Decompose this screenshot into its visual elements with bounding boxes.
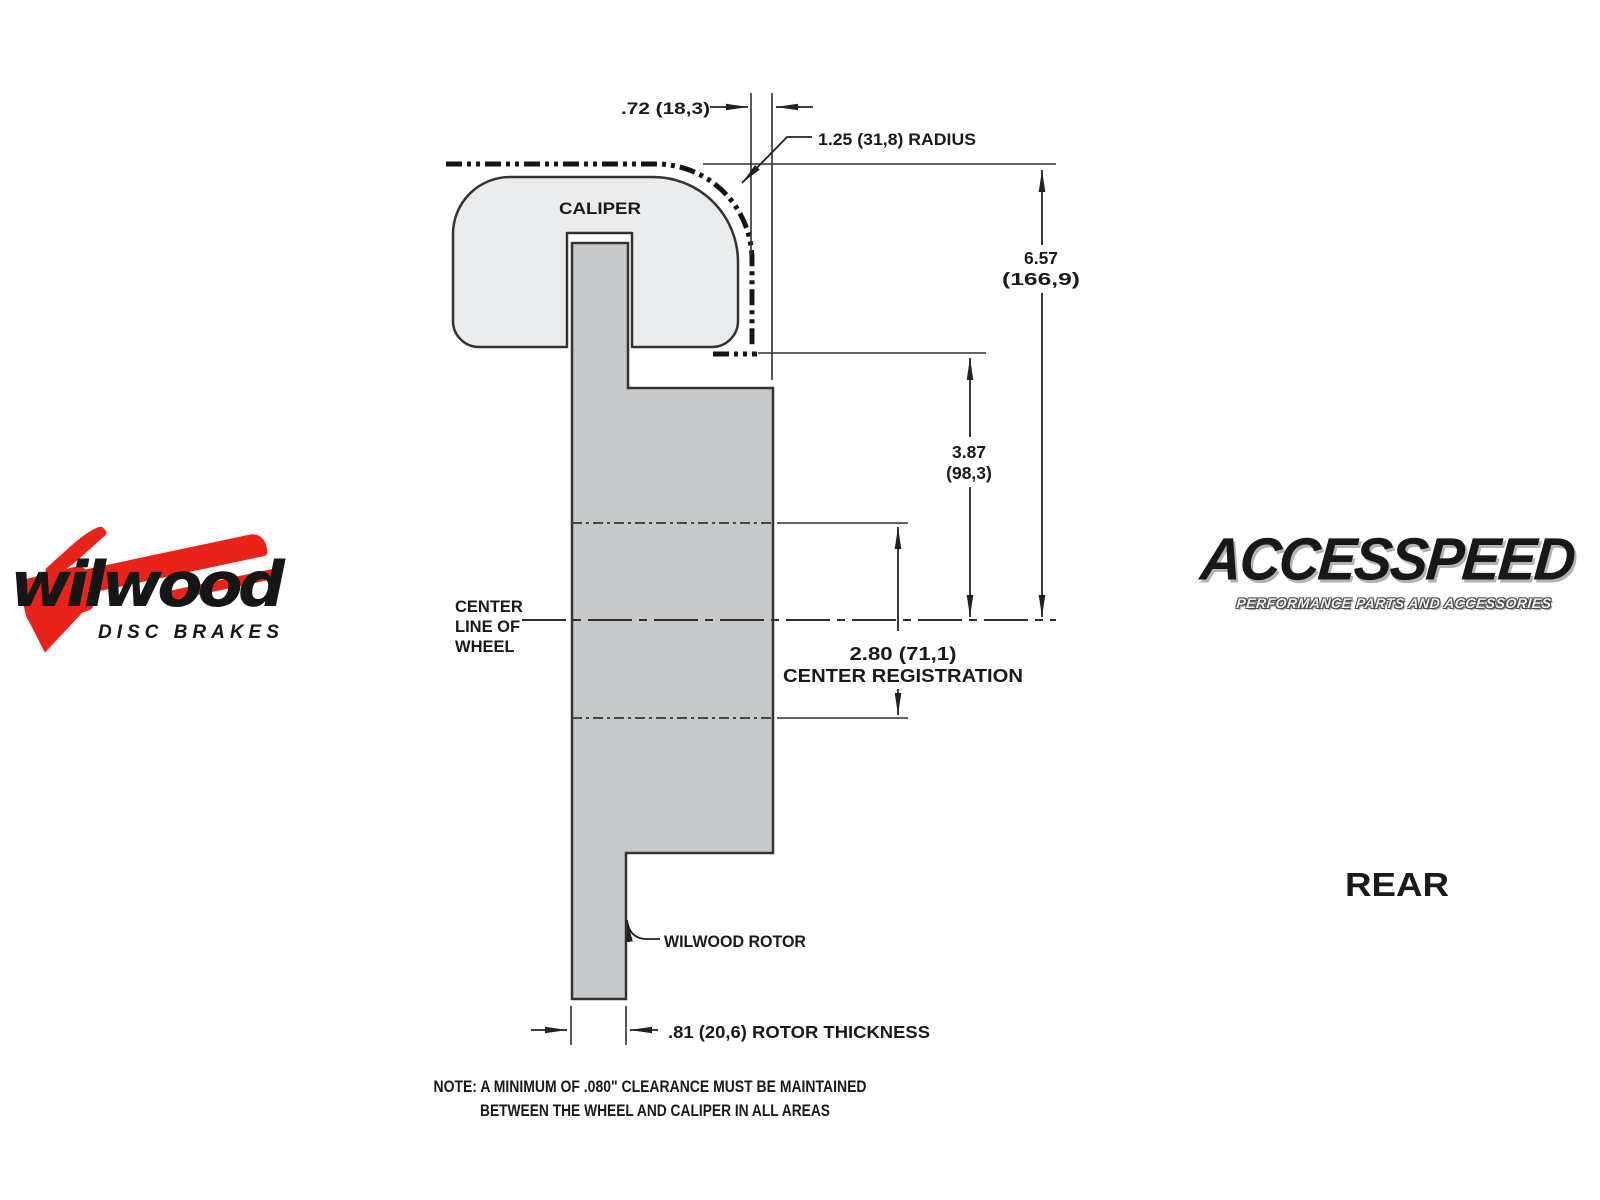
note-line-1: NOTE: A MINIMUM OF .080" CLEARANCE MUST … xyxy=(434,1077,867,1096)
dim-280-value: 2.80 (71,1) xyxy=(850,644,957,664)
dim-657-in: 6.57 xyxy=(1024,248,1058,268)
view-label: REAR xyxy=(1345,866,1449,903)
radius-leader xyxy=(742,137,812,183)
wilwood-logo: wilwood DISC BRAKES xyxy=(10,538,330,666)
centerline-label-1: CENTER xyxy=(455,598,523,616)
centerline-label-2: LINE OF xyxy=(455,618,520,636)
wilwood-tagline: DISC BRAKES xyxy=(98,622,284,644)
dim-280-label: CENTER REGISTRATION xyxy=(783,666,1023,686)
dim-offset-label: .72 (18,3) xyxy=(621,99,710,118)
dim-657-mm: (166,9) xyxy=(1002,269,1080,289)
accesspeed-tagline: PERFORMANCE PARTS AND ACCESSORIES xyxy=(1197,595,1590,611)
centerline-label: CENTER LINE OF WHEEL xyxy=(455,598,523,656)
dim-387-in: 3.87 xyxy=(952,442,986,462)
dim-387-mm: (98,3) xyxy=(946,463,992,483)
centerline-label-3: WHEEL xyxy=(455,638,515,656)
rotor-label: WILWOOD ROTOR xyxy=(664,932,806,951)
accesspeed-logo: ACCESSPEED PERFORMANCE PARTS AND ACCESSO… xyxy=(1198,532,1598,644)
rotor-thickness-label: .81 (20,6) ROTOR THICKNESS xyxy=(668,1022,930,1042)
radius-label: 1.25 (31,8) RADIUS xyxy=(818,130,976,149)
accesspeed-wordmark: ACCESSPEED xyxy=(1198,529,1600,592)
clearance-note: NOTE: A MINIMUM OF .080" CLEARANCE MUST … xyxy=(434,1077,867,1120)
note-line-2: BETWEEN THE WHEEL AND CALIPER IN ALL ARE… xyxy=(480,1101,830,1120)
caliper-label: CALIPER xyxy=(559,199,641,218)
rotor-leader xyxy=(627,920,660,939)
wilwood-wordmark: wilwood xyxy=(10,554,330,617)
